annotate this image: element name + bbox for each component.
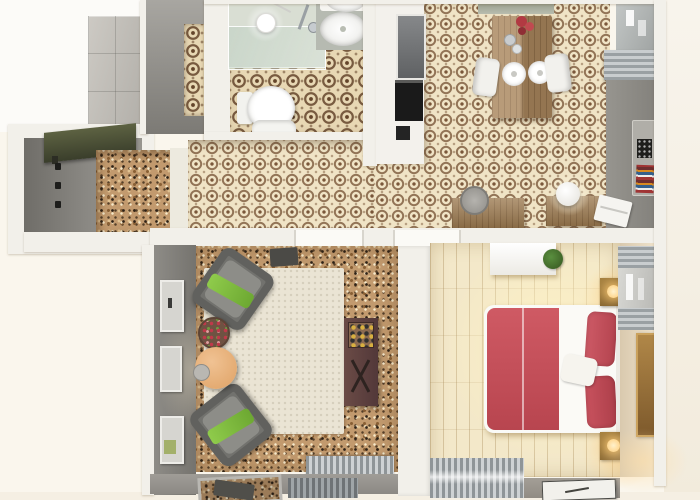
sink-drain [340,26,346,32]
bedroom-blinds-top [618,246,656,268]
table-jar [512,44,522,54]
entry-bottom-wall [24,232,154,252]
plate-center [511,71,517,77]
frame-art [168,298,172,308]
living-outer-wall [142,245,154,495]
window-reflection [638,278,644,300]
wall-frame [160,280,184,332]
outside-right-strip [664,0,700,500]
entry-threshold [170,148,190,232]
wall-frame [160,346,182,392]
pendant-light [256,13,276,33]
flower-side-table [198,317,230,349]
nightstand-lamp [607,439,620,452]
rug-mark [565,487,589,493]
window-reflection [626,10,634,26]
divider-wall [398,246,432,496]
right-outer-wall [654,0,666,486]
sideboard-x-decor [350,358,372,394]
coat-hook [55,163,61,170]
bathroom-left-wall [204,0,230,140]
duvet-seam [522,308,524,430]
plant [543,249,563,269]
window-reflection [626,274,633,300]
living-radiator [306,456,394,476]
shelf-dark-box [637,139,652,158]
bedroom-blinds-bottom [618,308,656,330]
white-rug [542,479,617,500]
oven [395,80,423,121]
coat-hook [55,182,61,189]
balcony-radiator [288,478,358,498]
flower-bouquet [525,22,534,31]
coat-hook [55,201,61,208]
floor-vase [193,364,210,381]
window-reflection [638,20,646,36]
media-box [269,247,298,267]
kitchen-appliance [396,14,426,80]
plate-center [537,70,543,76]
dining-chair [544,53,572,94]
entry-cork-floor [96,150,172,232]
bedroom-radiator [430,458,524,498]
book-stack [636,165,655,194]
bedroom-window-glass [618,268,656,308]
floor-plan-render [0,0,700,500]
hallway-floor [188,140,374,232]
flower-bouquet [518,27,526,35]
stool [460,186,489,215]
stone-column-tile-lines [88,16,142,130]
kitchen-drawer [396,126,410,140]
frame-art [164,440,176,454]
sphere-lamp [556,182,580,206]
kitchen-window-glass [616,2,656,52]
sideboard-decor [348,322,374,348]
kitchen-wall [363,0,377,166]
nook-tile-strip [184,24,206,116]
top-outer-wall [204,0,664,4]
kitchen-radiator [604,50,660,80]
